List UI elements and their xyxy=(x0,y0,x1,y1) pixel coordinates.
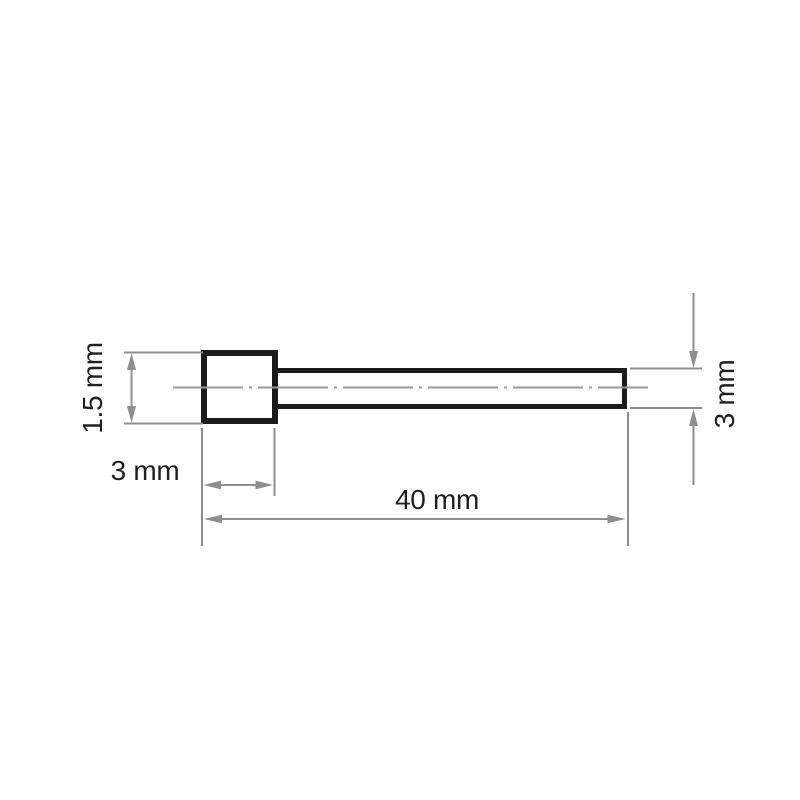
drawing-page: 1.5 mm 3 mm 40 mm 3 mm xyxy=(0,0,800,800)
dim-shank-diameter: 3 mm xyxy=(630,293,740,485)
arrowhead-down-icon xyxy=(689,351,698,368)
arrowhead-up-icon xyxy=(689,409,698,426)
dim-label-overall-length: 40 mm xyxy=(395,484,479,515)
arrowhead-up-icon xyxy=(127,353,136,370)
arrowhead-down-icon xyxy=(127,406,136,423)
dim-label-shank-diameter: 3 mm xyxy=(709,360,740,429)
arrowhead-left-icon xyxy=(204,515,222,524)
dim-label-head-width: 3 mm xyxy=(111,455,180,486)
dim-label-head-height: 1.5 mm xyxy=(77,342,108,434)
arrowhead-left-icon xyxy=(204,481,222,490)
dim-head-width: 3 mm xyxy=(111,428,275,546)
tool-outline xyxy=(173,353,648,421)
dim-overall-length: 40 mm xyxy=(204,412,628,546)
arrowhead-right-icon xyxy=(608,515,626,524)
technical-drawing: 1.5 mm 3 mm 40 mm 3 mm xyxy=(0,0,800,800)
arrowhead-right-icon xyxy=(256,481,274,490)
